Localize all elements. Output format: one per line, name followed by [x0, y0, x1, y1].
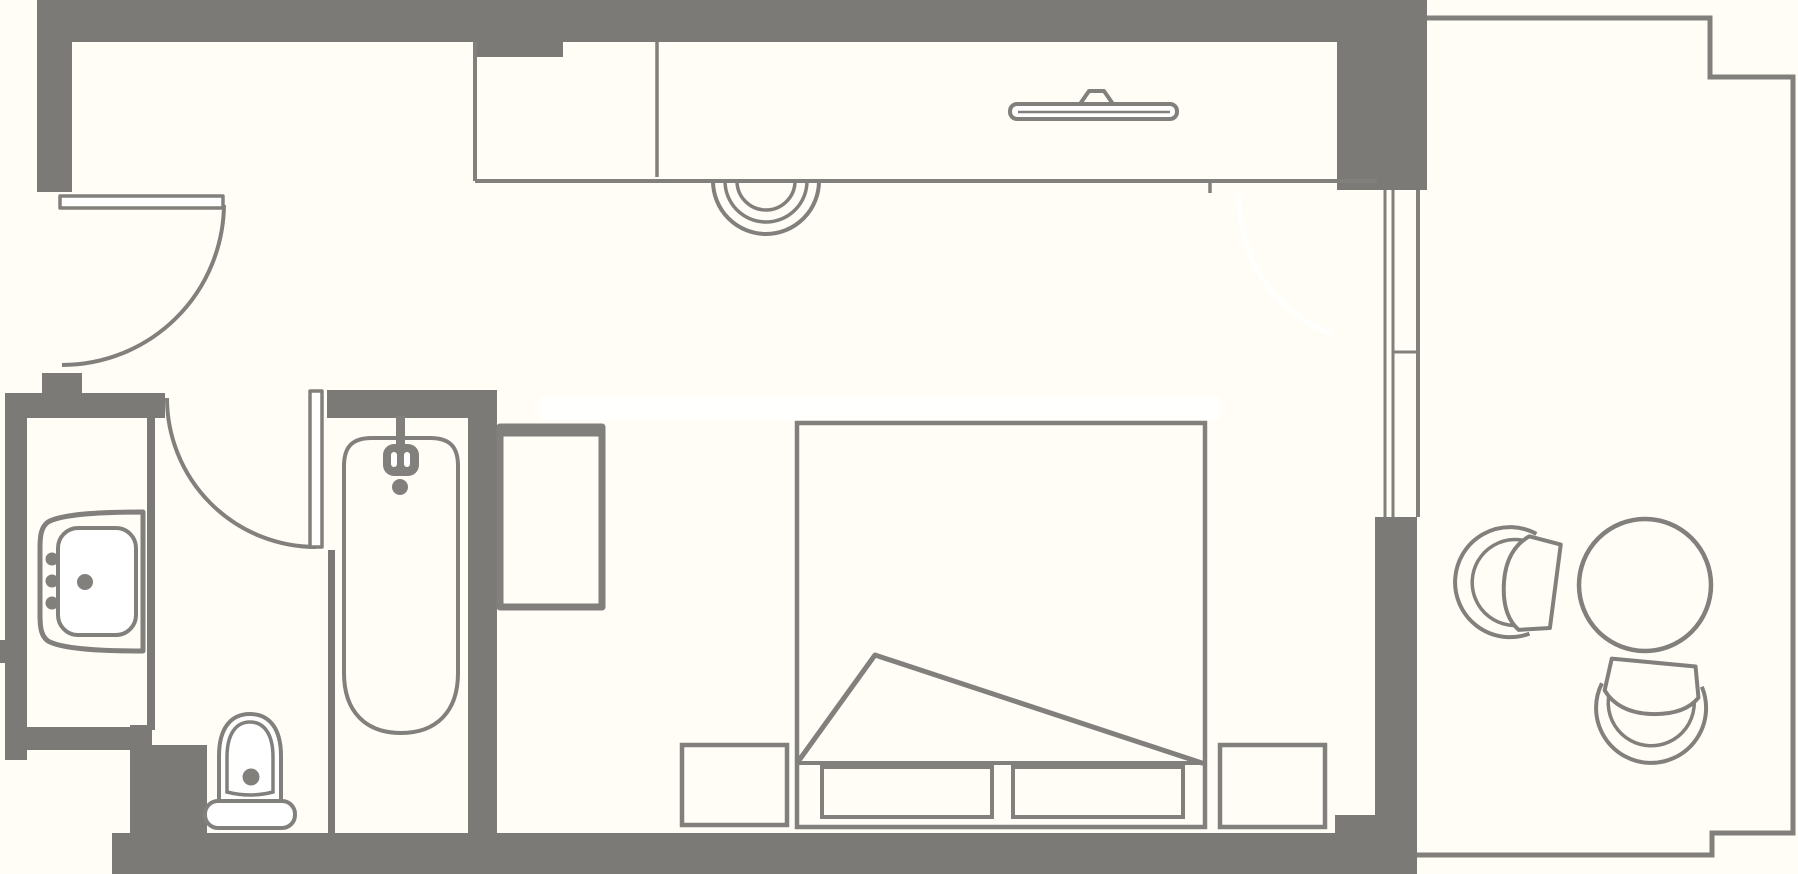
top-wall-step	[477, 42, 563, 57]
balcony-chair-left	[1451, 523, 1561, 640]
bathroom-door-arc	[167, 398, 316, 547]
bed-drawer-right	[1013, 767, 1183, 817]
blanket-fold	[800, 655, 1202, 763]
balcony-table	[1579, 519, 1711, 651]
bathroom-door	[167, 391, 322, 547]
sink-room-left-wall	[5, 393, 27, 760]
balcony	[1417, 18, 1793, 855]
bed-group	[682, 423, 1325, 827]
flush-dot-icon	[243, 769, 260, 786]
nightstand-left	[682, 745, 787, 825]
toilet-left-wall	[130, 725, 152, 833]
floor-plan-drawing	[0, 0, 1798, 874]
toilet-left-wall-2	[152, 745, 207, 833]
faucet-dot-icon	[77, 574, 93, 590]
entry-door	[60, 196, 224, 365]
bed-drawer-left	[822, 767, 992, 817]
floor-plan-canvas	[0, 0, 1798, 874]
balcony-chair-bottom	[1594, 658, 1708, 765]
tap-dot-icon	[46, 553, 59, 566]
top-wall	[37, 0, 1427, 42]
entry-door-arc	[62, 205, 224, 365]
washbasin-vanity	[40, 512, 143, 651]
bottom-wall	[112, 833, 1417, 874]
bathtub	[344, 416, 458, 733]
entry-door-leaf	[60, 196, 223, 208]
tap-dot-icon	[46, 597, 59, 610]
tv-icon	[1010, 91, 1177, 119]
toilet	[205, 714, 295, 828]
wall-arcs-icon	[713, 181, 819, 234]
basin	[58, 528, 136, 635]
bottom-wall-step	[1335, 815, 1377, 833]
sink-room-right-wall	[147, 418, 155, 730]
right-upper-column	[1337, 42, 1427, 190]
bathroom-door-leaf	[310, 391, 322, 547]
curtain-sweep-arc	[1239, 195, 1331, 334]
left-upper-wall	[37, 0, 72, 192]
tap-dot-icon	[46, 575, 59, 588]
left-wall-step	[0, 640, 27, 663]
cabinet-outline	[500, 427, 602, 607]
tall-cabinet	[500, 427, 602, 607]
toilet-bathtub-partition	[328, 550, 335, 833]
wardrobe-unit	[475, 42, 1377, 234]
highlight-band-headboard	[540, 396, 1220, 420]
nightstand-right	[1220, 745, 1325, 827]
sliding-window	[1385, 190, 1418, 517]
sink-room-bottom-wall	[5, 727, 148, 750]
entry-stub-wall	[42, 373, 82, 395]
toilet-pedestal	[205, 801, 295, 828]
sink-room-top-wall	[5, 393, 165, 418]
bathtub-room-top-wall	[327, 390, 497, 418]
right-lower-column	[1375, 517, 1417, 833]
bathtub-room-right-wall	[468, 418, 497, 833]
balcony-outline	[1417, 18, 1793, 855]
